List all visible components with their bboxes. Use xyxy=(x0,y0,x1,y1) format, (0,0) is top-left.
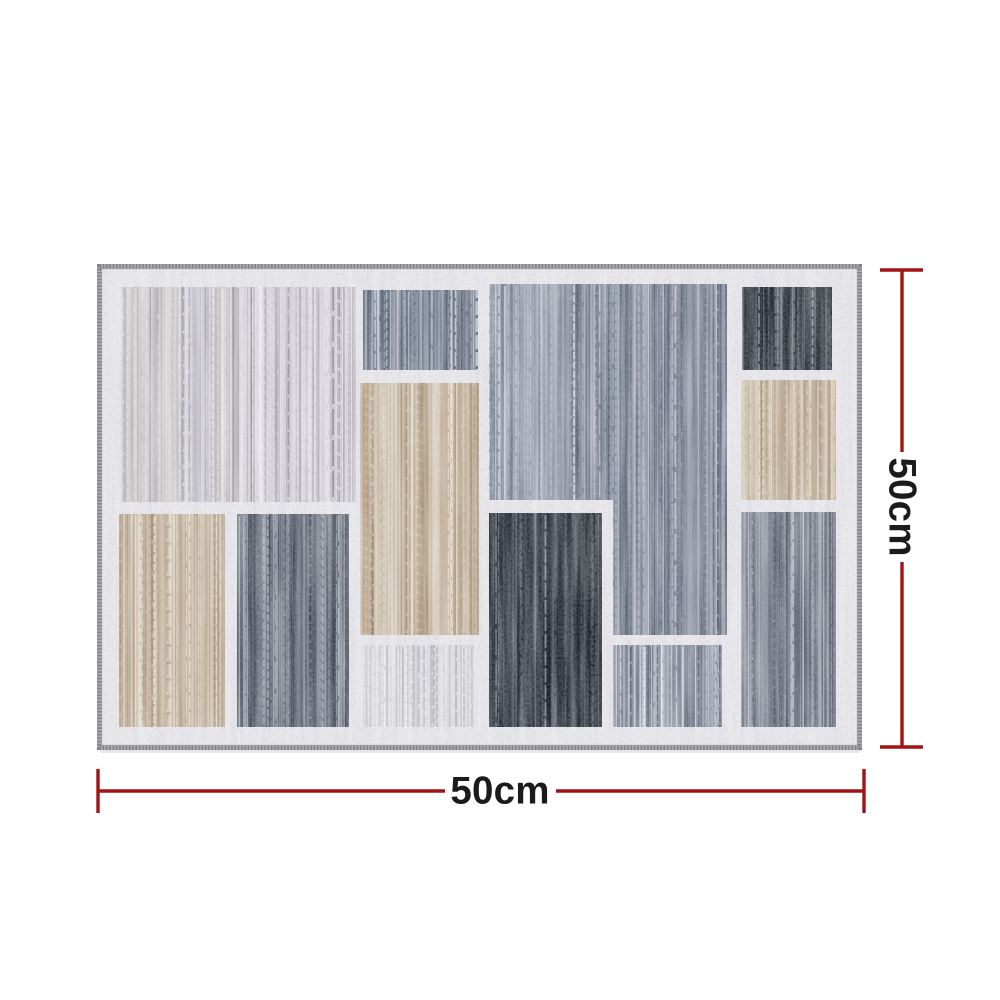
svg-text:50cm: 50cm xyxy=(450,770,549,813)
svg-text:50cm: 50cm xyxy=(881,457,924,556)
